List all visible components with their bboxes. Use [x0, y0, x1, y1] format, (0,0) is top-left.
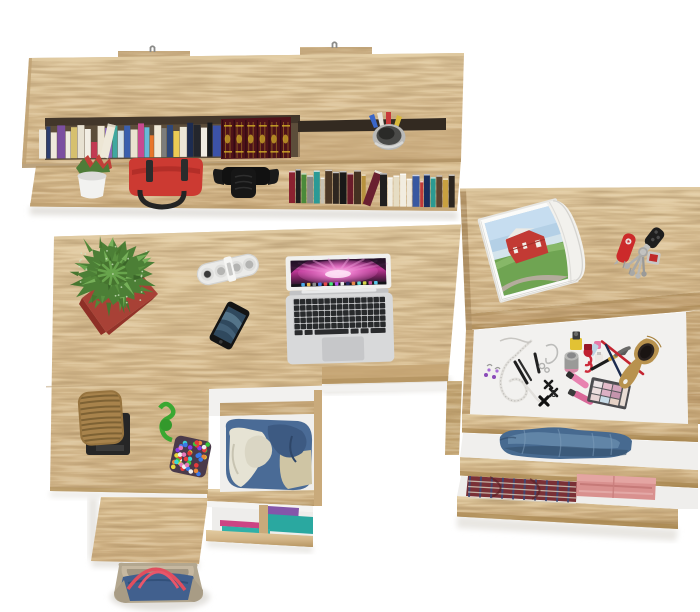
svg-text:5: 5 [551, 389, 557, 400]
